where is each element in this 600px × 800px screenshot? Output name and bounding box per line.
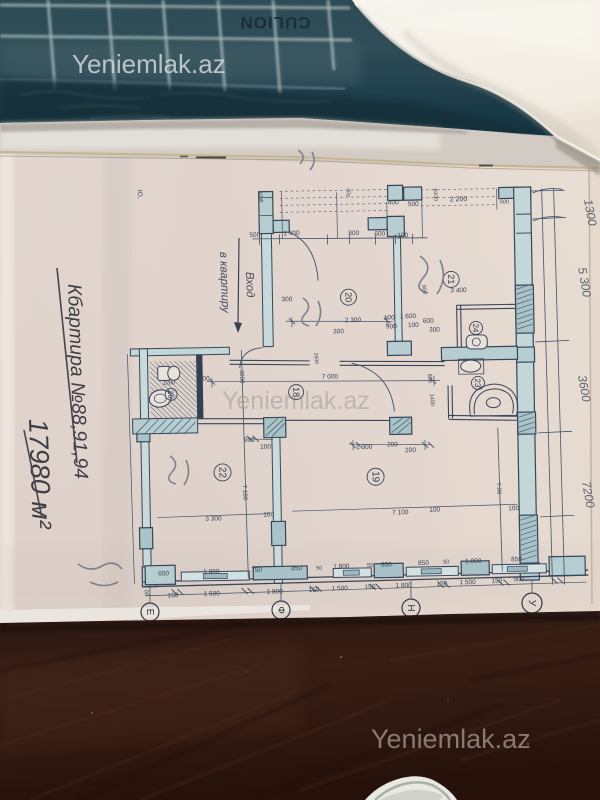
svg-text:7 000: 7 000	[322, 373, 339, 380]
svg-text:800: 800	[426, 374, 433, 384]
svg-text:850: 850	[418, 560, 429, 567]
svg-text:300: 300	[429, 327, 440, 334]
svg-text:7 100: 7 100	[241, 485, 248, 501]
svg-text:7 100: 7 100	[392, 509, 409, 516]
svg-text:750: 750	[251, 567, 262, 574]
svg-text:1 600: 1 600	[400, 313, 417, 320]
svg-text:00: 00	[143, 590, 149, 597]
svg-text:3 300: 3 300	[205, 515, 222, 522]
svg-text:22: 22	[216, 467, 227, 479]
svg-text:300: 300	[281, 296, 292, 303]
svg-text:100: 100	[408, 322, 419, 329]
svg-text:Ф: Ф	[275, 606, 286, 614]
svg-text:19: 19	[370, 471, 381, 483]
svg-text:2 300: 2 300	[345, 317, 362, 324]
svg-text:3200: 3200	[238, 370, 245, 384]
svg-text:200: 200	[405, 447, 416, 454]
svg-text:1 800: 1 800	[395, 582, 412, 589]
svg-text:50: 50	[367, 563, 373, 569]
svg-text:850: 850	[381, 561, 392, 568]
svg-text:100: 100	[199, 376, 210, 383]
svg-text:900: 900	[386, 323, 397, 330]
svg-text:2600: 2600	[312, 353, 319, 365]
svg-text:Yeniemlak.az: Yeniemlak.az	[222, 387, 370, 415]
svg-text:24: 24	[471, 323, 480, 333]
svg-text:в квартиру: в квартиру	[217, 252, 231, 315]
svg-text:100: 100	[397, 232, 408, 239]
svg-text:1 500: 1 500	[204, 590, 221, 597]
svg-text:100: 100	[260, 444, 271, 451]
svg-text:17980 м²: 17980 м²	[23, 418, 57, 530]
svg-text:H: H	[405, 604, 416, 611]
svg-text:CULION: CULION	[239, 13, 310, 32]
svg-text:100: 100	[384, 314, 395, 321]
svg-text:1400: 1400	[428, 393, 435, 406]
svg-text:20: 20	[343, 292, 353, 302]
svg-text:900: 900	[513, 576, 524, 583]
svg-text:600: 600	[374, 231, 385, 238]
svg-text:1200: 1200	[163, 380, 175, 386]
svg-text:1 300: 1 300	[356, 444, 373, 451]
svg-text:850: 850	[291, 565, 302, 572]
svg-text:Yeniemlak.az: Yeniemlak.az	[371, 724, 531, 754]
svg-text:23: 23	[473, 378, 482, 388]
svg-text:21: 21	[446, 274, 456, 284]
svg-text:100: 100	[429, 507, 440, 514]
svg-text:1 500: 1 500	[459, 579, 476, 586]
svg-text:7.00: 7.00	[495, 482, 502, 495]
svg-text:300: 300	[333, 328, 344, 335]
svg-text:850: 850	[511, 556, 522, 563]
svg-text:150: 150	[309, 587, 320, 594]
svg-text:E: E	[144, 609, 155, 616]
svg-text:150: 150	[364, 584, 375, 591]
svg-text:1 500: 1 500	[331, 585, 348, 592]
svg-text:150: 150	[491, 578, 502, 585]
svg-text:Yeniemlak.az: Yeniemlak.az	[72, 49, 226, 79]
svg-text:40у: 40у	[345, 188, 352, 198]
svg-text:50: 50	[316, 566, 322, 572]
svg-text:600: 600	[423, 318, 434, 325]
svg-text:800: 800	[348, 230, 359, 237]
svg-text:1.800: 1.800	[465, 558, 482, 565]
svg-text:650: 650	[158, 570, 169, 577]
svg-text:150: 150	[436, 581, 447, 588]
svg-text:100: 100	[508, 505, 519, 512]
svg-text:У: У	[526, 600, 537, 607]
svg-text:1.800: 1.800	[333, 563, 350, 570]
svg-text:1.800: 1.800	[203, 568, 220, 575]
svg-text:25: 25	[166, 390, 175, 398]
svg-text:2 200: 2 200	[450, 196, 468, 203]
svg-text:3 400: 3 400	[450, 287, 467, 294]
svg-text:900: 900	[244, 437, 255, 444]
svg-text:500: 500	[500, 199, 509, 205]
svg-text:200: 200	[387, 441, 398, 448]
svg-text:60/30: 60/30	[432, 188, 439, 201]
svg-text:Ю,: Ю,	[136, 190, 144, 200]
svg-text:50: 50	[443, 559, 449, 565]
svg-text:1 400: 1 400	[283, 230, 300, 237]
svg-text:Вход: Вход	[243, 272, 256, 298]
svg-text:100: 100	[263, 512, 274, 519]
svg-text:500: 500	[249, 232, 260, 239]
svg-text:400: 400	[388, 199, 399, 206]
svg-text:150: 150	[168, 592, 179, 599]
svg-text:500: 500	[408, 201, 419, 208]
